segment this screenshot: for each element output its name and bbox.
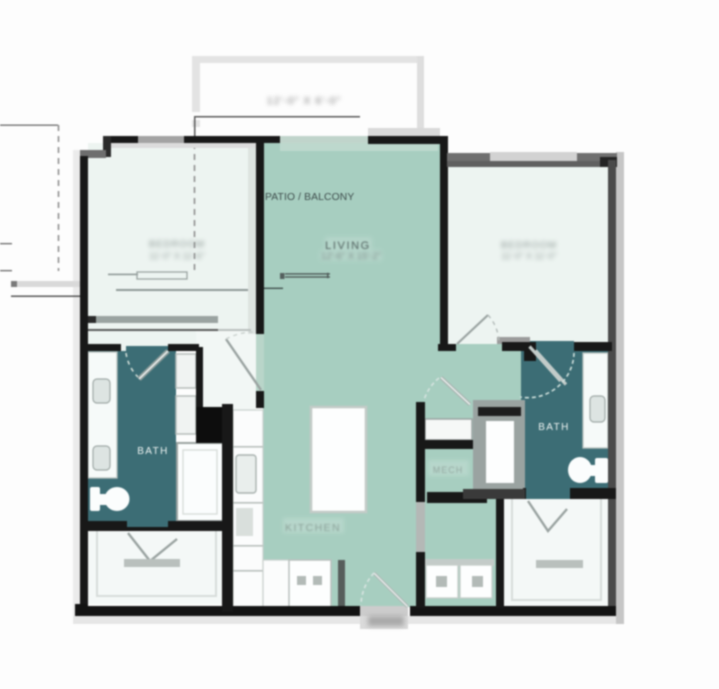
svg-text:11'-0" X 11'-6": 11'-0" X 11'-6": [149, 251, 205, 261]
svg-text:BEDROOM: BEDROOM: [149, 239, 205, 250]
svg-text:KITCHEN: KITCHEN: [285, 522, 341, 534]
svg-text:BATH: BATH: [538, 422, 570, 433]
svg-text:PATIO / BALCONY: PATIO / BALCONY: [265, 192, 354, 203]
svg-text:BATH: BATH: [137, 446, 169, 457]
svg-text:12'-0" X 6'-0": 12'-0" X 6'-0": [267, 95, 342, 107]
svg-text:MECH: MECH: [433, 465, 464, 475]
svg-text:BEDROOM: BEDROOM: [501, 240, 557, 251]
svg-text:12'-6" X 15'-2": 12'-6" X 15'-2": [321, 251, 381, 262]
svg-text:11'-0" X 11'-0": 11'-0" X 11'-0": [501, 251, 557, 261]
